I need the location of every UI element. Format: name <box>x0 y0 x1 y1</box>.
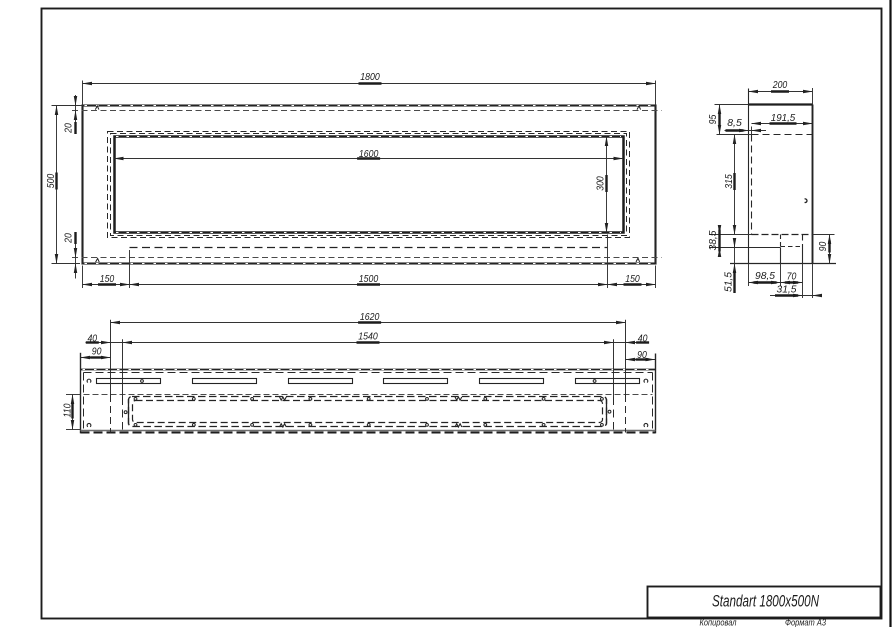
svg-text:150: 150 <box>100 273 115 285</box>
svg-text:70: 70 <box>787 271 797 283</box>
svg-text:1500: 1500 <box>359 273 379 285</box>
svg-text:500: 500 <box>45 174 57 189</box>
svg-text:90: 90 <box>817 242 829 252</box>
svg-text:Формат А3: Формат А3 <box>785 618 826 627</box>
svg-text:51,5: 51,5 <box>723 272 735 292</box>
svg-text:315: 315 <box>723 174 735 189</box>
svg-text:1800: 1800 <box>360 71 380 83</box>
svg-text:200: 200 <box>772 79 787 91</box>
svg-text:95: 95 <box>707 115 719 125</box>
svg-text:8,5: 8,5 <box>727 117 742 129</box>
svg-text:191,5: 191,5 <box>771 112 796 124</box>
svg-text:31,5: 31,5 <box>777 284 797 296</box>
svg-text:90: 90 <box>92 346 102 358</box>
svg-text:Копировал: Копировал <box>700 618 737 627</box>
svg-text:20: 20 <box>62 233 74 244</box>
svg-text:1620: 1620 <box>360 311 380 323</box>
svg-text:98,5: 98,5 <box>755 270 775 282</box>
svg-text:Standart 1800x500N: Standart 1800x500N <box>712 592 819 611</box>
svg-text:150: 150 <box>625 273 640 285</box>
svg-text:300: 300 <box>595 176 607 191</box>
svg-text:38,5: 38,5 <box>707 230 719 250</box>
svg-text:1540: 1540 <box>358 331 378 343</box>
svg-text:20: 20 <box>62 123 74 134</box>
